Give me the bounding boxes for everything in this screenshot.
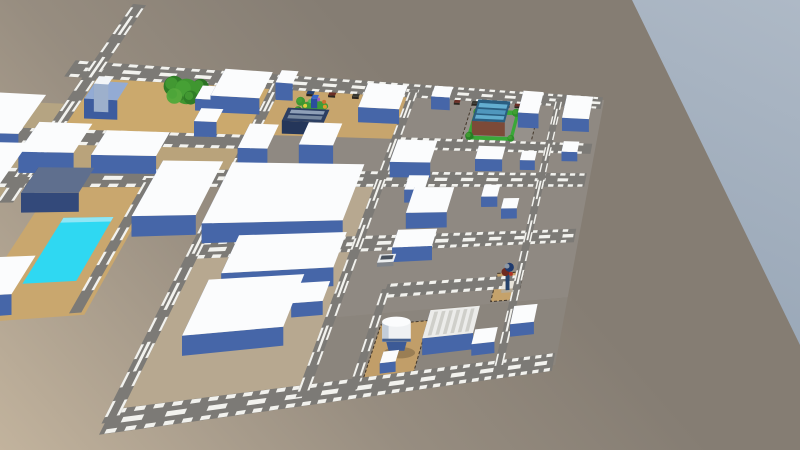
lane-dash (454, 279, 461, 283)
building-roof (431, 86, 453, 98)
figure-blob (509, 272, 513, 276)
lane-dash (517, 184, 523, 187)
lane-dash (466, 278, 473, 282)
lane-dash (487, 287, 494, 291)
lane-dash (489, 140, 495, 143)
lane-dash (451, 289, 459, 293)
building-south-wall (380, 361, 396, 373)
building-south-wall (194, 121, 217, 137)
lane-dash (416, 281, 424, 285)
lane-dash (185, 133, 195, 136)
building-roof (328, 92, 336, 95)
lane-dash (577, 184, 583, 187)
lane-dash (413, 292, 421, 296)
lane-dash (511, 178, 523, 181)
building-south-wall (406, 212, 447, 229)
bldg-warehouse (422, 306, 480, 355)
bldg-rc-d (501, 198, 519, 219)
lane-dash (486, 178, 499, 181)
lane-dash (453, 233, 460, 236)
building-south-wall (311, 99, 317, 109)
building-south-wall (431, 96, 450, 110)
lane-dash (390, 283, 398, 287)
lane-dash (557, 94, 562, 97)
building-roof (306, 91, 315, 94)
lane-dash (455, 172, 462, 175)
lane-dash (593, 97, 598, 100)
lane-dash (510, 173, 516, 176)
lane-dash (499, 90, 505, 93)
lane-dash (216, 134, 226, 137)
lane-dash (520, 141, 526, 144)
building-south-wall (390, 162, 430, 178)
lane-dash (548, 94, 554, 97)
lane-dash (463, 288, 470, 292)
lane-dash (530, 173, 536, 176)
tree-highlight (168, 89, 177, 98)
lane-dash (475, 288, 482, 292)
building-south-wall (328, 95, 335, 98)
building-roof (221, 232, 346, 273)
lane-dash (429, 281, 437, 285)
lane-dash (136, 78, 147, 81)
lane-dash (489, 90, 495, 93)
roof-stripe (380, 255, 393, 260)
lane-dash (552, 229, 558, 232)
lane-dash (400, 293, 408, 297)
lane-dash (538, 150, 544, 153)
lane-dash (330, 78, 338, 81)
building-south-wall (91, 155, 156, 174)
figure-blob (505, 264, 510, 269)
lane-dash (540, 241, 546, 244)
lane-dash (435, 239, 449, 243)
lane-dash (568, 184, 574, 187)
building-roof (390, 139, 438, 162)
lane-dash (425, 85, 432, 88)
lane-dash (304, 77, 312, 80)
lane-dash (461, 178, 474, 181)
scene-canvas (0, 0, 800, 450)
lane-dash (473, 243, 480, 246)
lane-dash (500, 141, 506, 144)
bldg-se-b (471, 327, 497, 356)
tree-highlight (466, 133, 471, 138)
lane-dash (366, 184, 374, 187)
building-south-wall (392, 246, 432, 262)
lane-dash (176, 68, 186, 71)
building-south-wall (562, 152, 578, 162)
lane-dash (462, 238, 476, 242)
building-roof (471, 327, 497, 344)
lane-dash (548, 184, 554, 187)
building-south-wall (481, 197, 497, 208)
lane-dash (208, 247, 228, 252)
lane-dash (474, 184, 481, 187)
lane-dash (355, 80, 363, 83)
lane-dash (144, 65, 154, 68)
building-south-wall (520, 160, 535, 170)
lane-dash (169, 132, 179, 135)
building-south-wall (454, 103, 460, 105)
building-south-wall (276, 82, 293, 100)
lane-dash (509, 91, 515, 94)
lane-dash (206, 70, 216, 73)
lane-dash (342, 79, 350, 82)
lane-dash (570, 173, 576, 176)
building-south-wall (562, 118, 589, 132)
lane-dash (160, 67, 170, 70)
building-roof (392, 229, 437, 248)
lane-dash (128, 64, 139, 67)
lane-dash (112, 63, 123, 66)
lane-dash (579, 173, 585, 176)
lane-dash (376, 241, 392, 245)
lane-dash (530, 142, 536, 145)
building-roof (454, 100, 461, 103)
lane-dash (540, 142, 546, 145)
lane-dash (488, 232, 495, 235)
lane-dash (478, 140, 485, 143)
lane-dash (550, 240, 556, 243)
lane-dash (162, 144, 173, 147)
lane-dash (438, 245, 445, 248)
lane-dash (179, 144, 189, 147)
lane-dash (191, 69, 201, 72)
lane-dash (562, 234, 574, 238)
lane-dash (69, 74, 81, 78)
lane-dash (558, 184, 564, 187)
lane-dash (210, 145, 220, 148)
playground-equipment (322, 100, 326, 104)
lane-dash (421, 96, 428, 99)
lane-dash (360, 248, 369, 251)
lane-dash (457, 139, 464, 142)
building-south-wall (291, 301, 322, 318)
lane-dash (440, 184, 447, 187)
lane-dash (442, 148, 449, 151)
building-roof (510, 304, 537, 324)
bldg-rc-a (475, 146, 505, 172)
lane-dash (546, 103, 552, 106)
playground-equipment (323, 105, 327, 109)
bldg-ne-small (562, 141, 580, 161)
bldg-rc-b (520, 151, 537, 171)
building-south-wall (21, 193, 79, 213)
building-south-wall (475, 159, 502, 172)
lane-dash (499, 231, 506, 234)
lane-dash (317, 78, 325, 81)
lane-dash (428, 184, 435, 187)
tower-band (382, 339, 411, 342)
building-south-wall (358, 107, 399, 124)
lane-dash (496, 243, 503, 246)
lane-dash (479, 89, 485, 92)
building-south-wall (352, 97, 359, 100)
lane-dash (477, 172, 484, 175)
lane-dash (489, 237, 502, 241)
building-roof (501, 198, 519, 209)
lane-dash (528, 184, 534, 187)
lane-dash (542, 230, 548, 233)
lane-dash (426, 291, 434, 295)
building-south-wall (94, 84, 108, 113)
lane-dash (152, 79, 162, 82)
lane-dash (539, 235, 551, 239)
lane-dash (445, 139, 452, 142)
building-south-wall (518, 113, 539, 129)
building-roof (481, 185, 500, 197)
lane-dash (465, 98, 471, 101)
lane-dash (225, 145, 235, 148)
building-roof (352, 94, 360, 97)
lane-dash (374, 248, 382, 251)
building-south-wall (132, 215, 196, 237)
lane-dash (443, 172, 450, 175)
lane-dash (489, 277, 496, 280)
lane-dash (499, 173, 505, 176)
lane-dash (465, 148, 472, 151)
lane-dash (591, 106, 596, 108)
tower-dome (382, 317, 411, 327)
lane-dash (432, 172, 439, 175)
lane-dash (337, 90, 345, 93)
lane-dash (231, 134, 241, 137)
lane-dash (438, 290, 446, 294)
tree-highlight (513, 109, 518, 114)
lane-dash (370, 171, 378, 174)
lane-dash (391, 184, 399, 187)
tree-highlight (297, 98, 302, 103)
lane-dash (563, 229, 569, 232)
lane-dash (441, 233, 448, 236)
lane-dash (365, 236, 373, 239)
lane-dash (120, 77, 131, 81)
lane-dash (478, 277, 485, 281)
lane-dash (560, 240, 566, 243)
lane-dash (350, 91, 358, 94)
lane-dash (550, 173, 556, 176)
building-south-wall (501, 208, 517, 219)
lane-dash (508, 150, 514, 153)
lane-dash (403, 282, 411, 286)
lane-dash (298, 88, 306, 91)
car (377, 254, 396, 267)
lane-dash (458, 87, 465, 90)
lane-dash (468, 88, 474, 91)
building-south-wall (472, 121, 505, 136)
building-roof (562, 141, 580, 152)
tower-legs (386, 342, 407, 351)
simulation-viewport[interactable] (0, 0, 800, 450)
lane-dash (102, 176, 124, 180)
street-prop (454, 100, 461, 105)
tree-highlight (185, 92, 193, 100)
lane-dash (125, 184, 136, 187)
lane-dash (454, 148, 461, 151)
bldg-restaurant (472, 99, 511, 136)
lane-dash (507, 184, 513, 187)
bldg-ne-corner (562, 95, 593, 132)
lane-dash (466, 172, 473, 175)
lane-dash (560, 173, 566, 176)
lane-dash (485, 243, 492, 246)
lane-dash (451, 184, 458, 187)
lane-dash (463, 184, 470, 187)
lane-dash (195, 145, 205, 148)
lane-dash (325, 90, 333, 93)
lane-dash (465, 232, 472, 235)
building-roof (520, 151, 537, 161)
lane-dash (434, 178, 448, 181)
tree-highlight (508, 135, 512, 139)
building-roof (562, 95, 593, 119)
lane-dash (488, 172, 495, 175)
lane-dash (520, 173, 526, 176)
building-roof (475, 146, 505, 160)
lane-dash (414, 84, 421, 87)
lane-dash (507, 242, 514, 245)
lane-dash (476, 232, 483, 235)
bldg-se-a (510, 304, 537, 337)
lane-dash (441, 280, 449, 284)
lane-dash (462, 244, 469, 247)
lane-dash (211, 254, 222, 258)
bldg-midcol-d (392, 229, 437, 263)
lane-dash (378, 235, 386, 238)
lane-dash (450, 244, 457, 247)
lane-dash (557, 178, 568, 181)
lane-dash (510, 231, 517, 234)
